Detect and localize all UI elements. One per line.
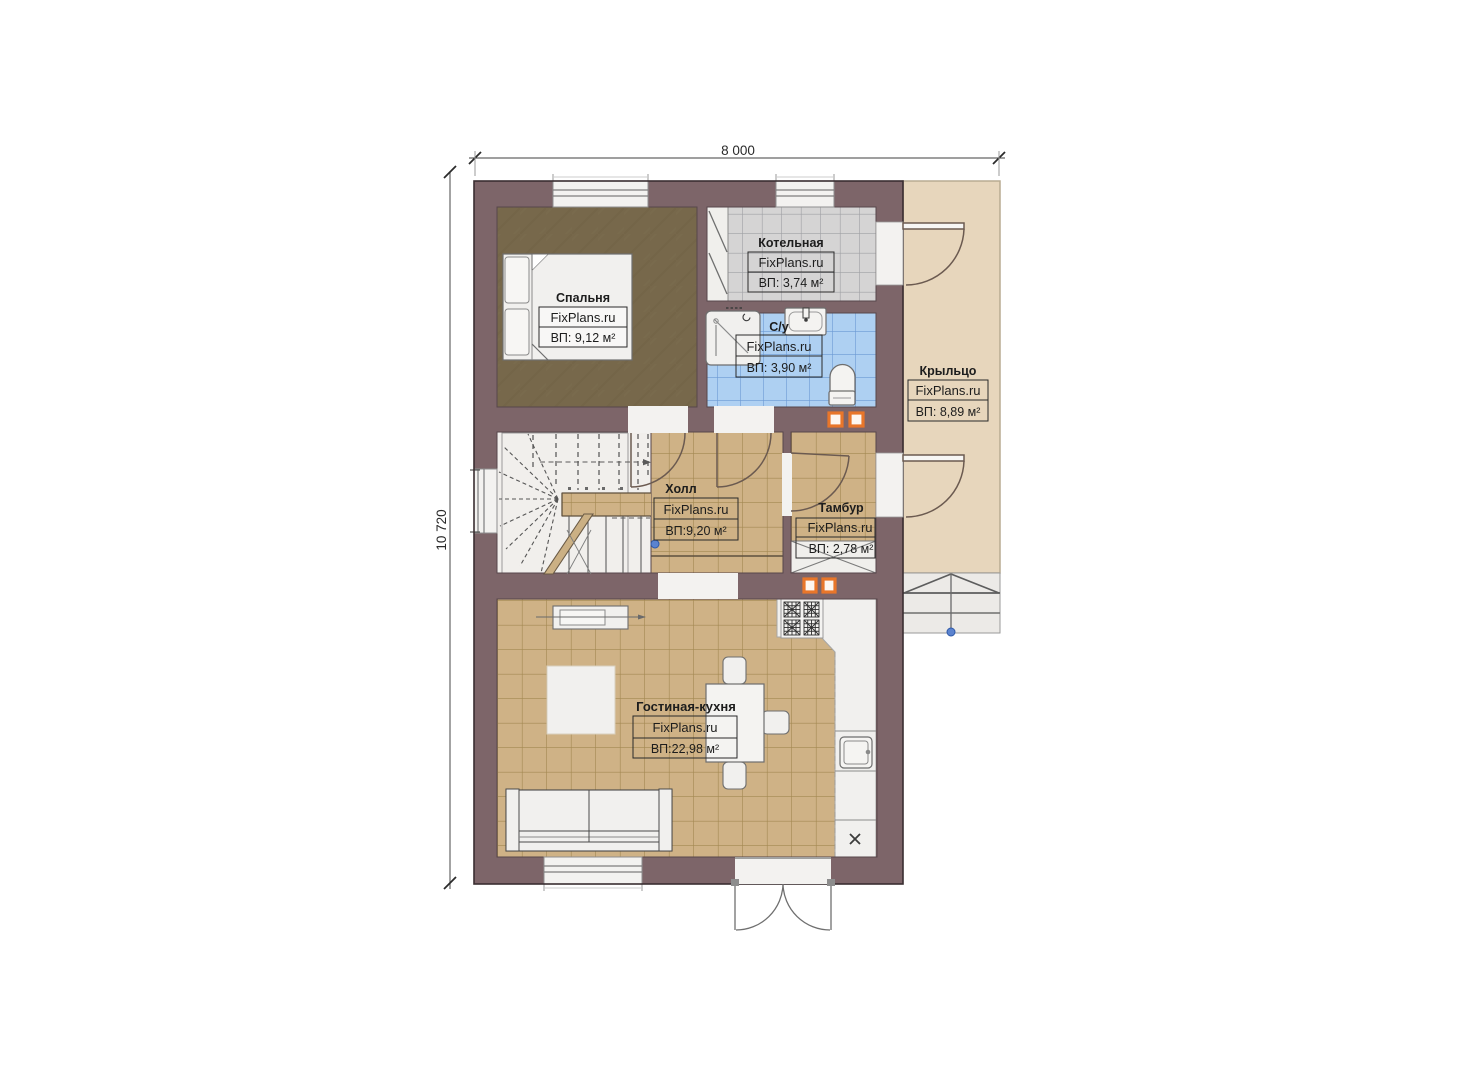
svg-text:10 720: 10 720: [434, 509, 449, 550]
svg-text:ВП: 3,74 м²: ВП: 3,74 м²: [759, 276, 824, 290]
svg-text:ВП:9,20 м²: ВП:9,20 м²: [665, 524, 726, 538]
svg-text:ВП:22,98 м²: ВП:22,98 м²: [651, 742, 719, 756]
svg-text:FixPlans.ru: FixPlans.ru: [746, 339, 811, 354]
svg-text:Котельная: Котельная: [758, 236, 823, 250]
svg-text:FixPlans.ru: FixPlans.ru: [915, 383, 980, 398]
svg-text:С/у: С/у: [769, 320, 789, 334]
svg-text:Гостиная-кухня: Гостиная-кухня: [636, 699, 736, 714]
svg-text:Холл: Холл: [665, 482, 696, 496]
svg-text:FixPlans.ru: FixPlans.ru: [652, 720, 717, 735]
svg-text:Спальня: Спальня: [556, 291, 610, 305]
svg-text:FixPlans.ru: FixPlans.ru: [758, 255, 823, 270]
svg-text:ВП: 9,12 м²: ВП: 9,12 м²: [551, 331, 616, 345]
svg-text:ВП: 3,90 м²: ВП: 3,90 м²: [747, 361, 812, 375]
svg-text:ВП: 8,89 м²: ВП: 8,89 м²: [916, 405, 981, 419]
svg-text:ВП: 2,78 м²: ВП: 2,78 м²: [809, 542, 874, 556]
svg-text:FixPlans.ru: FixPlans.ru: [807, 520, 872, 535]
svg-text:FixPlans.ru: FixPlans.ru: [550, 310, 615, 325]
svg-text:Тамбур: Тамбур: [818, 501, 864, 515]
svg-text:Крыльцо: Крыльцо: [920, 364, 977, 378]
svg-text:FixPlans.ru: FixPlans.ru: [663, 502, 728, 517]
svg-text:8 000: 8 000: [721, 143, 755, 158]
